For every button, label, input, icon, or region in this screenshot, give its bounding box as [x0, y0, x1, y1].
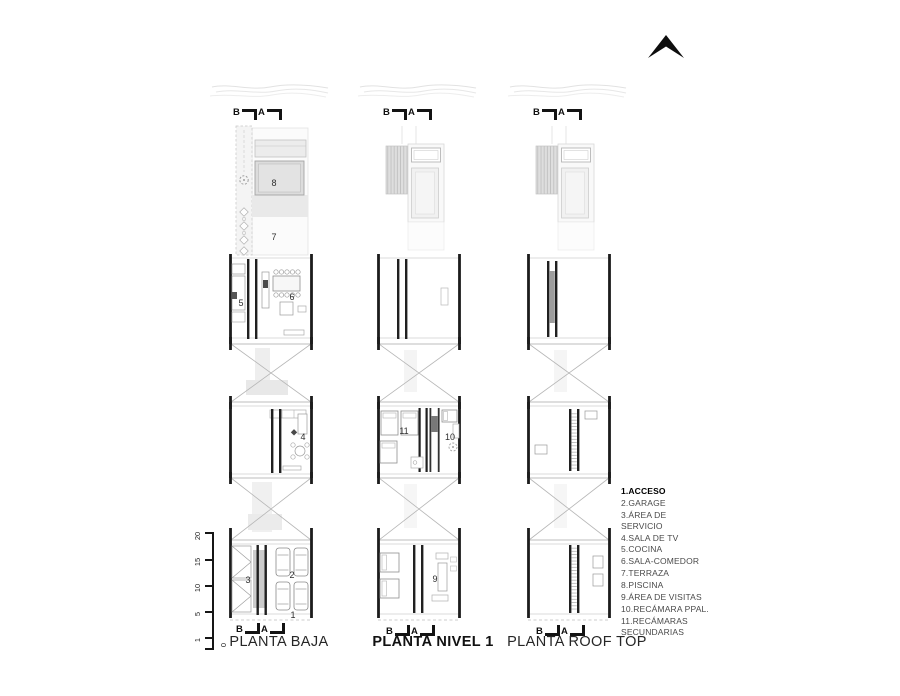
stair-wall: [555, 261, 557, 337]
stair-wall: [577, 409, 579, 471]
bed: [380, 579, 399, 598]
plan-column-planta-roof-top: [508, 80, 630, 665]
roof-deck-middle: [535, 409, 597, 471]
car: [276, 548, 290, 576]
stair-wall: [421, 545, 423, 613]
stair-treads: [572, 547, 577, 611]
section-marker-letter: A: [408, 108, 415, 118]
room-label-cocina: 5: [238, 298, 243, 308]
legend-item: 10.RECÁMARA PPAL.: [621, 604, 718, 615]
open-terrace-room: [397, 259, 448, 339]
room-label-area-servicio: 3: [245, 575, 250, 585]
stair-wall: [569, 409, 571, 471]
bed: [380, 441, 397, 463]
room-label-recamara-ppal: 10: [445, 432, 455, 442]
scale-tick: [205, 648, 213, 650]
roof-deck-lower: [569, 545, 603, 613]
scale-label: 0: [219, 637, 229, 653]
wavy-terrain-lines: [358, 85, 476, 97]
legend-item: 2.GARAGE: [621, 498, 718, 509]
bed: [380, 553, 399, 572]
tv-room: 4: [270, 409, 309, 473]
section-cut-bracket-icon: [242, 109, 257, 120]
wavy-terrain-lines: [210, 85, 328, 97]
stair-wall: [279, 409, 281, 473]
legend-item: 9.ÁREA DE VISITAS: [621, 592, 718, 603]
plan-column-planta-baja: 8 7: [210, 80, 332, 665]
car: [294, 582, 308, 610]
room-label-terraza: 7: [271, 232, 276, 242]
stair-treads: [572, 411, 577, 469]
section-cut-bracket-icon: [417, 109, 432, 120]
section-marker-letter: B: [383, 108, 390, 118]
section-marker-a: A: [558, 108, 582, 121]
car: [294, 548, 308, 576]
legend-item: 4.SALA DE TV: [621, 533, 718, 544]
scale-tick: [205, 585, 213, 587]
room-label-recamaras-secundarias: 11: [399, 426, 408, 436]
legend-item: 1.ACCESO: [621, 486, 718, 497]
guest-area-room: 9: [380, 545, 457, 613]
room-label-garage: 2: [289, 570, 294, 580]
planta-nivel-1-drawing: 11 10 9: [358, 80, 480, 665]
room-label-acceso: 1: [290, 610, 295, 620]
stair-wall: [569, 545, 571, 613]
legend-item: 5.COCINA: [621, 544, 718, 555]
stair-flight: [431, 416, 438, 432]
sofa: [280, 302, 293, 315]
scale-tick: [205, 559, 213, 561]
room-label-area-visitas: 9: [432, 574, 437, 584]
roof-terrace-block: [386, 126, 444, 250]
section-marker-letter: A: [258, 108, 265, 118]
legend-item: 7.TERRAZA: [621, 568, 718, 579]
section-cut-bracket-icon: [270, 623, 285, 634]
section-cut-bracket-icon: [245, 623, 260, 634]
section-marker-letter: B: [533, 108, 540, 118]
section-marker-b: B: [233, 108, 257, 121]
roof-terrace-block: [536, 126, 594, 250]
legend: 1.ACCESO 2.GARAGE 3.ÁREA DE SERVICIO 4.S…: [621, 486, 718, 638]
scale-bar-line: [212, 532, 214, 650]
scale-label: 10: [193, 580, 203, 596]
planta-roof-top-drawing: [508, 80, 630, 665]
room-label-sala-tv: 4: [300, 432, 305, 442]
stair-wall: [397, 259, 399, 339]
stair-wall: [255, 259, 257, 339]
bed: [381, 411, 398, 435]
stair-wall: [577, 545, 579, 613]
kitchen-island: [262, 272, 269, 308]
section-marker-letter: A: [558, 108, 565, 118]
legend-item: 8.PISCINA: [621, 580, 718, 591]
legend-item: 11.RECÁMARAS SECUNDARIAS: [621, 616, 718, 638]
scale-tick: [205, 611, 213, 613]
section-cut-bracket-icon: [542, 109, 557, 120]
stair-wall: [271, 409, 273, 473]
north-arrow-icon: [644, 32, 688, 60]
stair-wall: [405, 259, 407, 339]
section-marker-a: A: [408, 108, 432, 121]
scale-tick: [205, 637, 213, 639]
legend-item: 3.ÁREA DE SERVICIO: [621, 510, 718, 532]
scale-label: 5: [193, 606, 203, 622]
stair-wall: [426, 408, 428, 472]
stair-wall: [247, 259, 249, 339]
stair-wall: [547, 261, 549, 337]
scale-label: 20: [193, 528, 203, 544]
section-marker-a: A: [258, 108, 282, 121]
dining-table: [273, 276, 300, 291]
section-cut-bracket-icon: [267, 109, 282, 120]
planta-baja-drawing: 8 7: [210, 80, 332, 665]
wavy-terrain-lines: [508, 85, 626, 97]
terrace-pool-block: 8 7: [236, 126, 308, 255]
section-cut-bracket-icon: [392, 109, 407, 120]
stair-wall: [265, 545, 267, 615]
scale-label: 1: [193, 632, 203, 648]
garage-service-room: 3 2 1: [232, 545, 308, 620]
drawing-sheet: 8 7: [0, 0, 900, 696]
section-marker-b: B: [383, 108, 407, 121]
plan-column-planta-nivel-1: 11 10 9: [358, 80, 480, 665]
room-label-sala-comedor: 6: [289, 292, 294, 302]
section-cut-bracket-icon: [567, 109, 582, 120]
bedrooms-room: 11 10: [380, 408, 459, 472]
roof-deck-upper: [547, 261, 557, 337]
plan-title-planta-nivel-1: PLANTA NIVEL 1: [353, 634, 513, 650]
room-label-piscina: 8: [271, 178, 276, 188]
scale-tick: [205, 532, 213, 534]
stair-wall: [257, 545, 259, 615]
kitchen-dining-room: 5 6: [232, 259, 306, 339]
stair-wall: [413, 545, 415, 613]
section-marker-b: B: [533, 108, 557, 121]
round-table: [295, 446, 305, 456]
scale-label: 15: [193, 554, 203, 570]
sofa: [298, 414, 307, 434]
car: [276, 582, 290, 610]
section-marker-letter: B: [233, 108, 240, 118]
legend-item: 6.SALA-COMEDOR: [621, 556, 718, 567]
stair-flight: [550, 271, 555, 323]
